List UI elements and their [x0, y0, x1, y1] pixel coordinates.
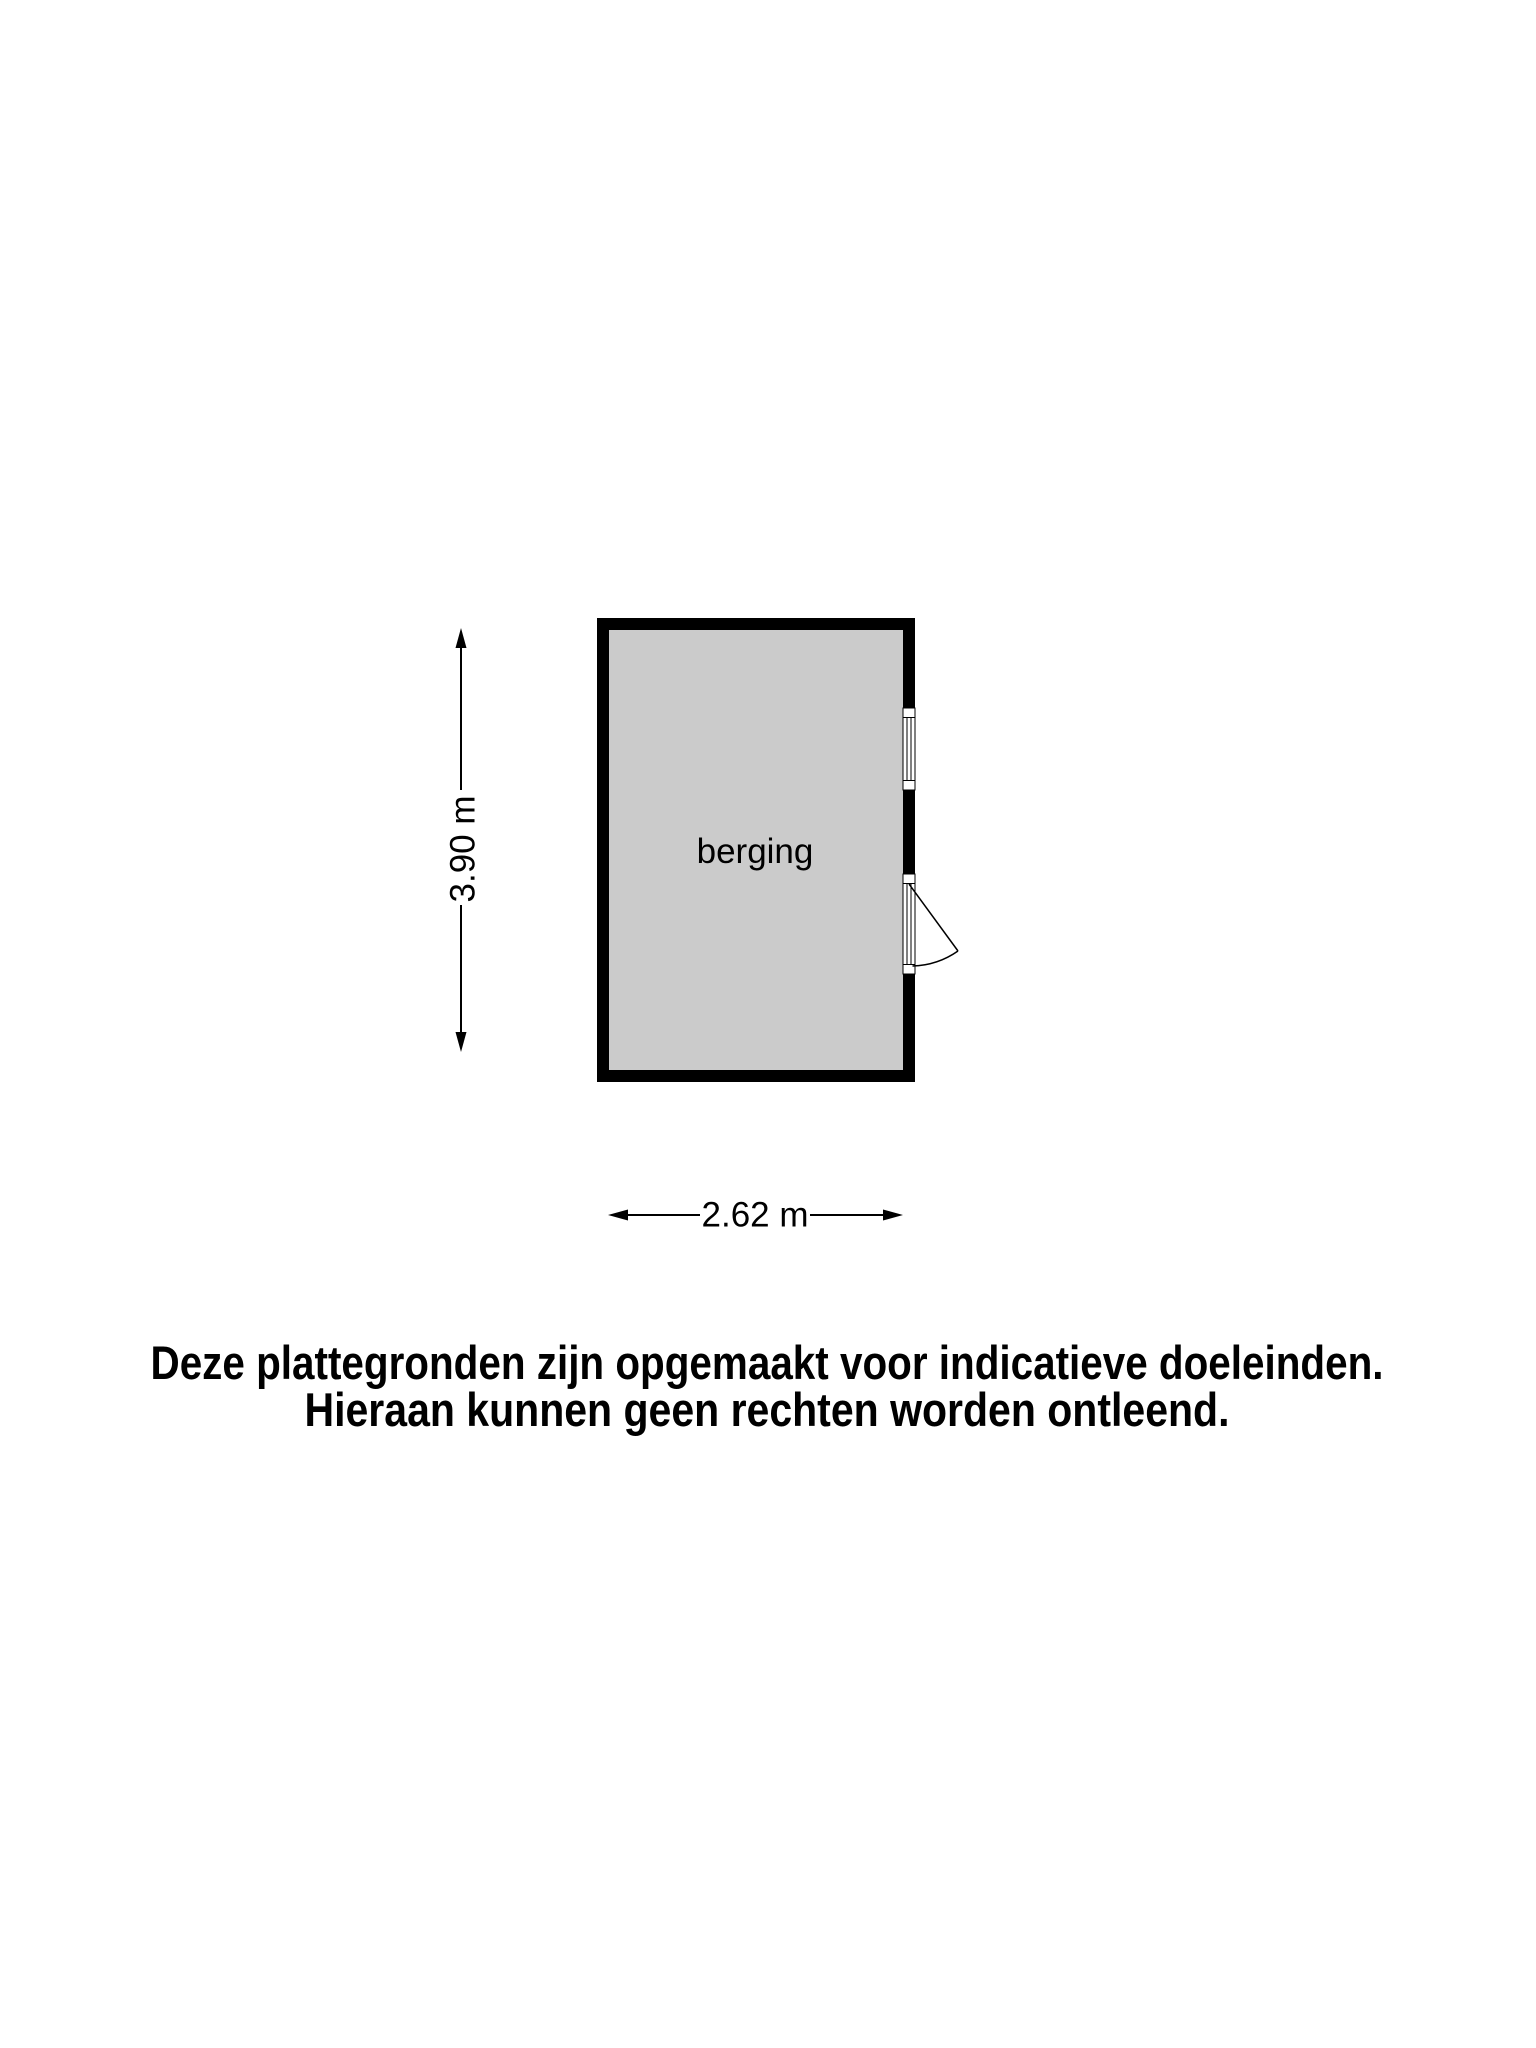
- width-dimension-label: 2.62 m: [702, 1196, 809, 1235]
- window-opening: [903, 708, 915, 790]
- disclaimer-line-2: Hieraan kunnen geen rechten worden ontle…: [305, 1383, 1230, 1436]
- door-icon: [903, 874, 958, 974]
- dimension-width: 2.62 m: [608, 1196, 903, 1235]
- arrow-up-icon: [456, 628, 467, 648]
- room-label: berging: [697, 832, 814, 871]
- floorplan-canvas: berging 3.90 m: [0, 0, 1536, 2048]
- room-berging: berging: [597, 618, 915, 1082]
- dimension-height: 3.90 m: [444, 628, 483, 1052]
- arrow-left-icon: [608, 1210, 628, 1221]
- height-dimension-label: 3.90 m: [444, 796, 483, 903]
- door-swing-arc: [913, 951, 959, 966]
- disclaimer-text: Deze plattegronden zijn opgemaakt voor i…: [151, 1336, 1384, 1436]
- arrow-down-icon: [456, 1032, 467, 1052]
- disclaimer-line-1: Deze plattegronden zijn opgemaakt voor i…: [151, 1336, 1384, 1389]
- window-icon: [903, 708, 915, 790]
- door-leaf-line: [909, 884, 958, 951]
- floorplan-page: berging 3.90 m: [0, 0, 1536, 2048]
- arrow-right-icon: [883, 1210, 903, 1221]
